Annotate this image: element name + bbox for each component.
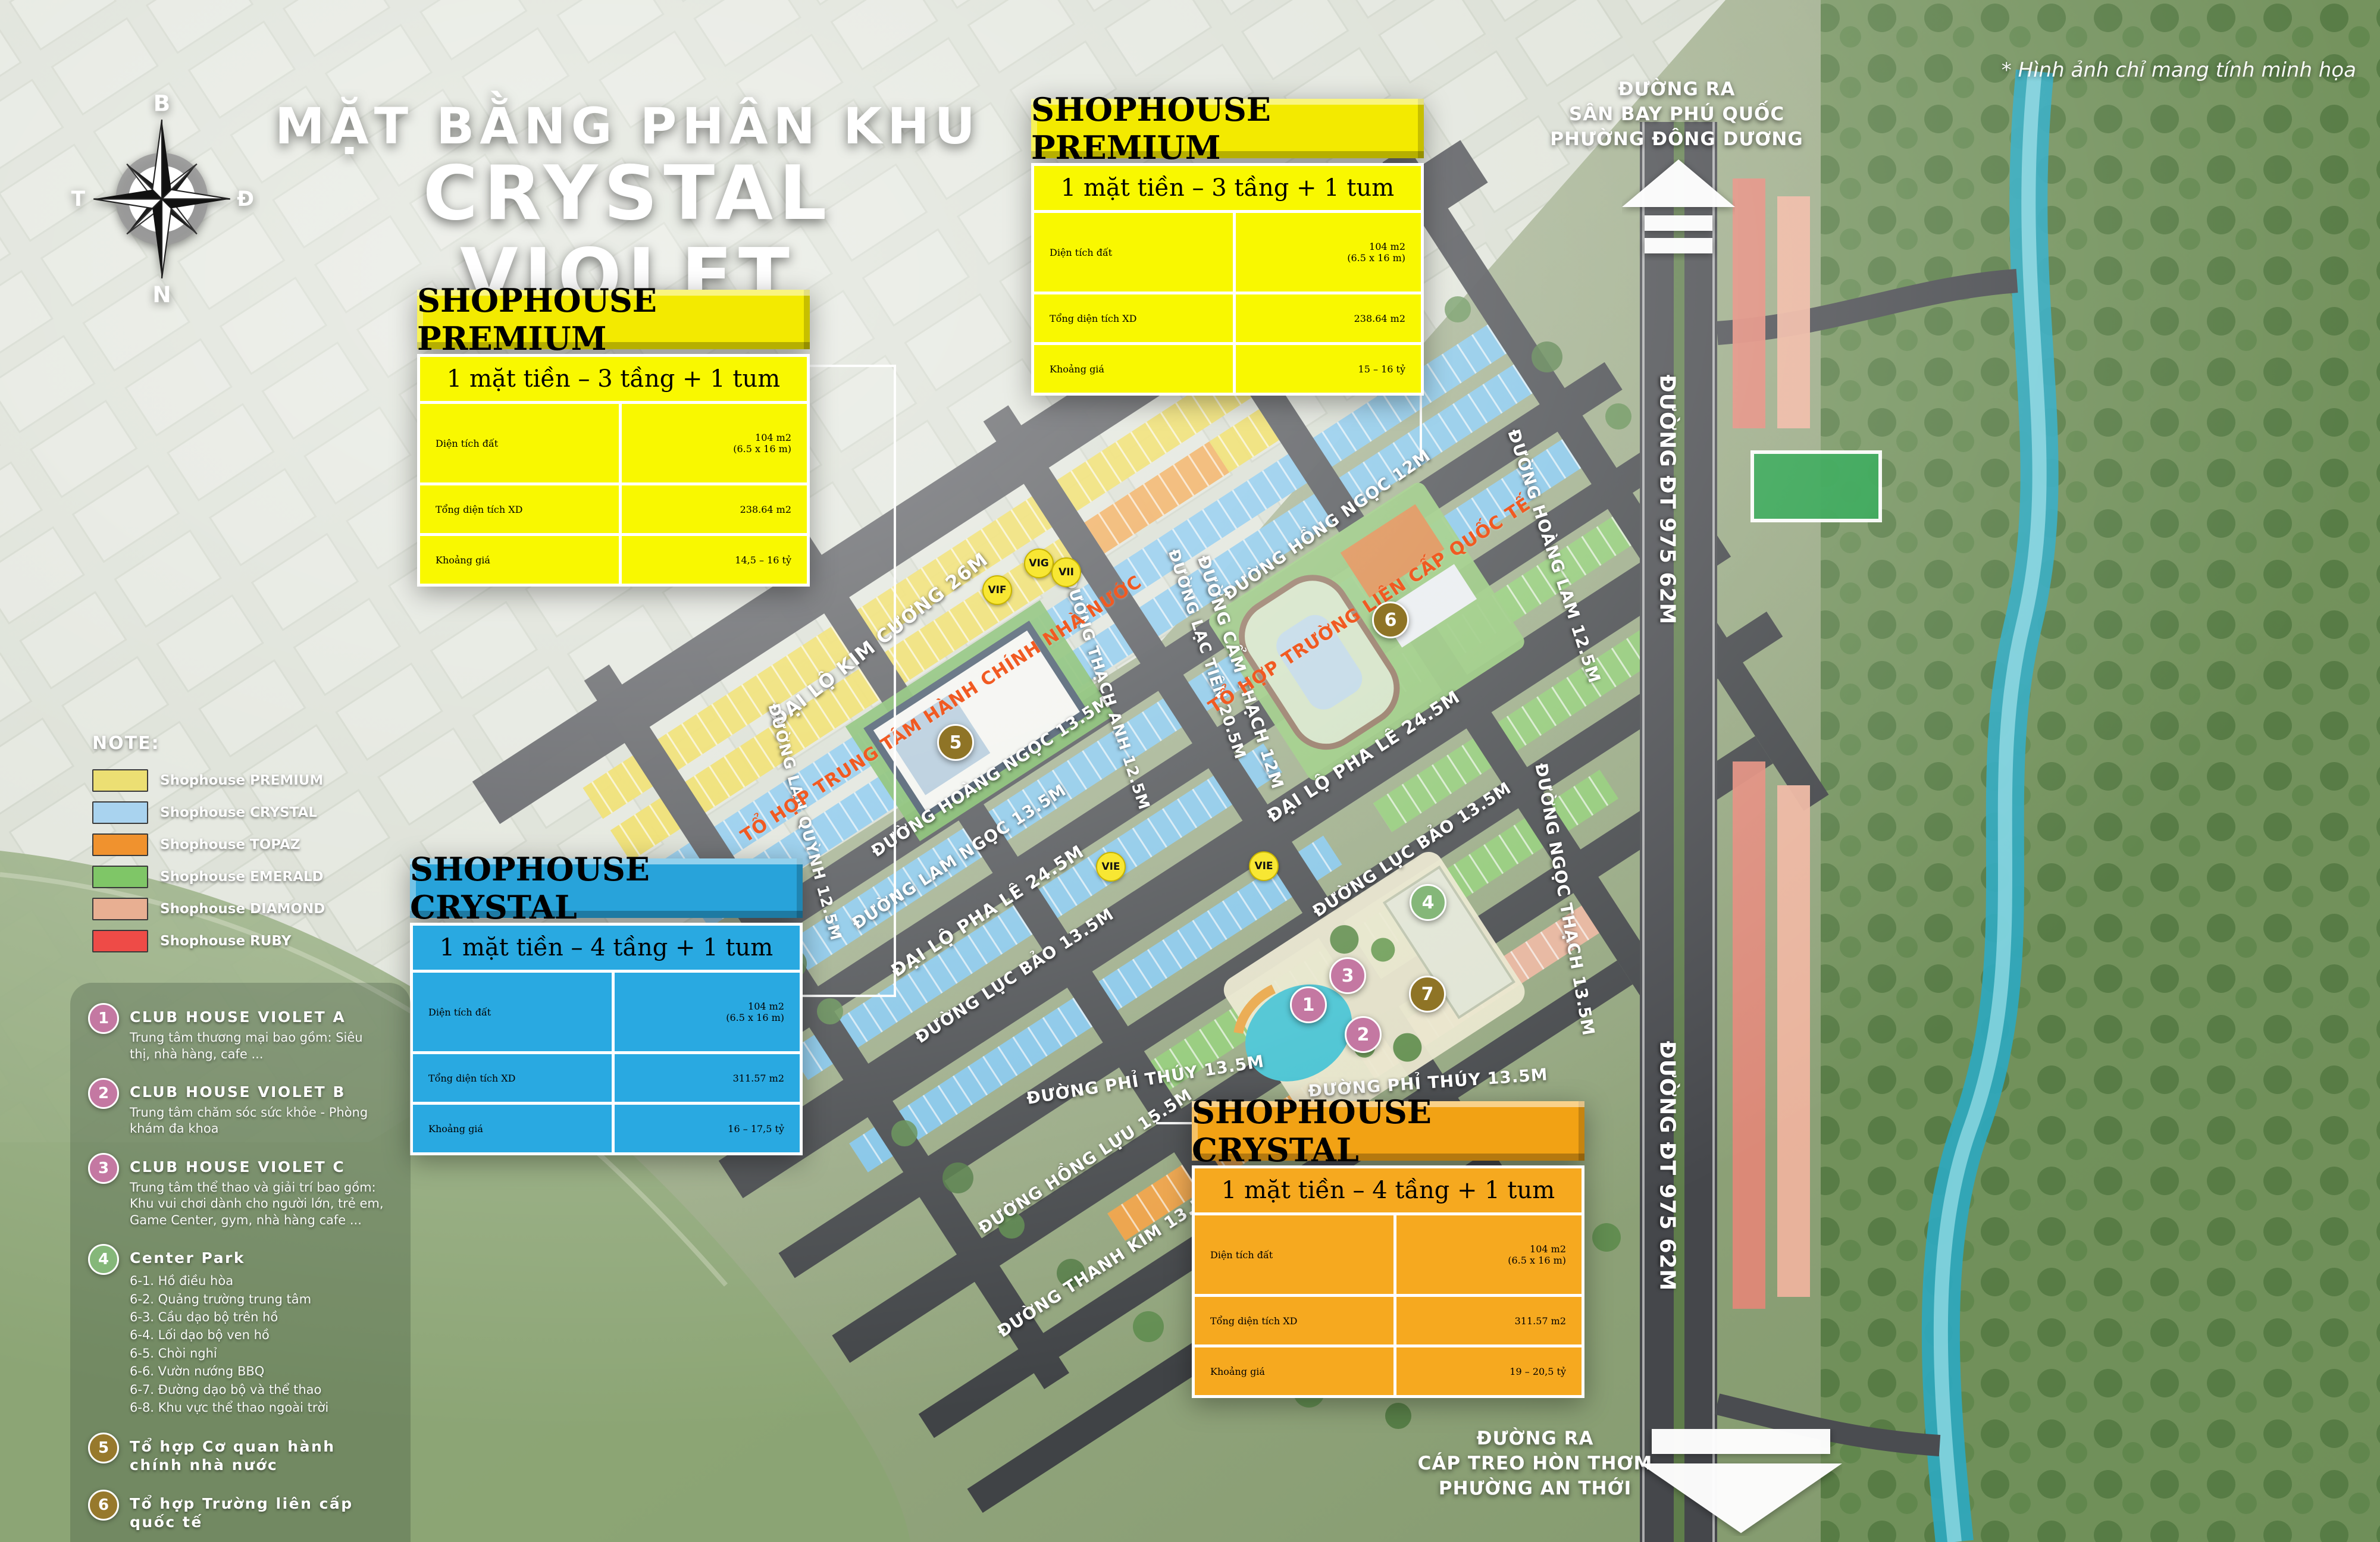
sign-line: SÂN BAY PHÚ QUỐC — [1528, 102, 1825, 127]
title-subdivision: MẶT BẰNG PHÂN KHU — [271, 100, 985, 152]
note-desc: Trung tâm thương mại bao gồm: Siêu thị, … — [130, 1030, 386, 1063]
infobox-shophouse-premium-left: SHOPHOUSE PREMIUM 1 mặt tiền – 3 tầng + … — [417, 290, 810, 587]
legend-swatch — [92, 801, 148, 824]
price-label: Khoảng giá — [1195, 1347, 1393, 1395]
price-value: 14,5 – 16 tỷ — [622, 536, 807, 584]
legend-label: Shophouse EMERALD — [160, 869, 324, 885]
legend-swatch — [92, 866, 148, 888]
sign-cable-car: ĐƯỜNG RA CÁP TREO HÒN THƠM PHƯỜNG AN THỚ… — [1386, 1427, 1684, 1502]
infobox-shophouse-premium-top: SHOPHOUSE PREMIUM 1 mặt tiền – 3 tầng + … — [1031, 99, 1424, 396]
gfa-value: 238.64 m2 — [1236, 294, 1421, 342]
infobox-title: SHOPHOUSE PREMIUM — [417, 290, 810, 349]
infobox-shophouse-crystal-blue: SHOPHOUSE CRYSTAL 1 mặt tiền – 4 tầng + … — [410, 858, 803, 1155]
arrow-up-icon — [1622, 159, 1735, 261]
price-label: Khoảng giá — [1034, 345, 1233, 393]
note-number-badge: 2 — [88, 1078, 119, 1109]
leader-line — [810, 365, 896, 367]
legend-label: Shophouse TOPAZ — [160, 837, 300, 853]
land-area-dims: (6.5 x 16 m) — [733, 443, 791, 455]
note-subitem: 6-1. Hồ điều hòa — [130, 1272, 328, 1290]
note-number-badge: 3 — [88, 1153, 119, 1184]
note-number-badge: 4 — [88, 1244, 119, 1275]
price-value: 15 – 16 tỷ — [1236, 345, 1421, 393]
legend-item: Shophouse TOPAZ — [92, 829, 390, 861]
legend-swatch — [92, 898, 148, 920]
note-item: 2CLUB HOUSE VIOLET BTrung tâm chăm sóc s… — [88, 1078, 395, 1137]
note-content: CLUB HOUSE VIOLET BTrung tâm chăm sóc sứ… — [130, 1078, 386, 1137]
leader-line — [803, 995, 896, 997]
land-area-value: 104 m2 — [1530, 1243, 1566, 1255]
note-desc: Trung tâm thể thao và giải trí bao gồm: … — [130, 1180, 386, 1228]
note-number-badge: 5 — [88, 1433, 119, 1463]
land-area-dims: (6.5 x 16 m) — [1347, 252, 1405, 264]
compass-south-label: N — [152, 281, 171, 308]
leader-line — [1420, 385, 1422, 458]
disclaimer-note: * Hình ảnh chỉ mang tính minh họa — [1999, 58, 2356, 82]
land-area-label: Diện tích đất — [420, 404, 619, 482]
note-title: Tổ hợp Trường liên cấp quốc tế — [130, 1494, 395, 1532]
compass-north-label: B — [154, 90, 170, 117]
note-title: Center Park — [130, 1249, 328, 1267]
note-content: Tổ hợp Trường liên cấp quốc tế — [130, 1490, 395, 1532]
note-number-badge: 6 — [88, 1490, 119, 1521]
gfa-value: 238.64 m2 — [622, 485, 807, 533]
note-subitem: 6-2. Quảng trường trung tâm — [130, 1290, 328, 1308]
legend: NOTE: Shophouse PREMIUMShophouse CRYSTAL… — [92, 733, 390, 957]
gfa-label: Tổng diện tích XD — [1195, 1297, 1393, 1344]
sign-airport: ĐƯỜNG RA SÂN BAY PHÚ QUỐC PHƯỜNG ĐÔNG DƯ… — [1528, 77, 1825, 152]
infobox-shophouse-crystal-orange: SHOPHOUSE CRYSTAL 1 mặt tiền – 4 tầng + … — [1192, 1101, 1584, 1398]
gfa-label: Tổng diện tích XD — [420, 485, 619, 533]
compass-rose: B Đ N T — [64, 82, 260, 316]
sign-line: ĐƯỜNG RA — [1386, 1427, 1684, 1452]
legend-item: Shophouse EMERALD — [92, 861, 390, 893]
note-subitems: 6-1. Hồ điều hòa6-2. Quảng trường trung … — [130, 1272, 328, 1417]
infobox-title: SHOPHOUSE PREMIUM — [1031, 99, 1424, 158]
legend-label: Shophouse DIAMOND — [160, 901, 325, 917]
compass-star — [93, 120, 230, 278]
sign-line: PHƯỜNG ĐÔNG DƯƠNG — [1528, 127, 1825, 152]
legend-items: Shophouse PREMIUMShophouse CRYSTALShopho… — [92, 764, 390, 957]
note-item: 1CLUB HOUSE VIOLET ATrung tâm thương mại… — [88, 1003, 395, 1063]
infobox-title: SHOPHOUSE CRYSTAL — [410, 858, 803, 918]
compass-west-label: T — [71, 187, 86, 211]
note-content: CLUB HOUSE VIOLET CTrung tâm thể thao và… — [130, 1153, 386, 1228]
note-subitem: 6-4. Lối dạo bộ ven hồ — [130, 1326, 328, 1344]
note-title: CLUB HOUSE VIOLET B — [130, 1083, 386, 1101]
note-item: 4Center Park6-1. Hồ điều hòa6-2. Quảng t… — [88, 1244, 395, 1417]
infobox-frontage: 1 mặt tiền – 3 tầng + 1 tum — [1034, 166, 1421, 210]
land-area-dims: (6.5 x 16 m) — [1508, 1255, 1566, 1266]
legend-label: Shophouse CRYSTAL — [160, 805, 317, 820]
leader-line — [1156, 1122, 1192, 1124]
infobox-frontage: 1 mặt tiền – 3 tầng + 1 tum — [420, 357, 807, 401]
land-area-value: 104 m2 — [748, 1001, 784, 1012]
legend-item: Shophouse RUBY — [92, 925, 390, 957]
note-subitem: 6-8. Khu vực thể thao ngoài trời — [130, 1399, 328, 1416]
note-title: CLUB HOUSE VIOLET C — [130, 1158, 386, 1176]
leader-line — [894, 365, 896, 996]
legend-item: Shophouse PREMIUM — [92, 764, 390, 797]
sign-line: ĐƯỜNG RA — [1528, 77, 1825, 102]
legend-swatch — [92, 769, 148, 792]
note-subitem: 6-6. Vườn nướng BBQ — [130, 1362, 328, 1380]
note-item: 5Tổ hợp Cơ quan hành chính nhà nước — [88, 1433, 395, 1475]
sign-line: CÁP TREO HÒN THƠM — [1386, 1452, 1684, 1477]
arrow-down-icon — [1640, 1429, 1842, 1536]
note-item: 3CLUB HOUSE VIOLET CTrung tâm thể thao v… — [88, 1153, 395, 1228]
sign-line: PHƯỜNG AN THỚI — [1386, 1477, 1684, 1502]
price-value: 16 – 17,5 tỷ — [615, 1105, 800, 1152]
legend-item: Shophouse CRYSTAL — [92, 797, 390, 829]
note-item: 6Tổ hợp Trường liên cấp quốc tế — [88, 1490, 395, 1532]
legend-title: NOTE: — [92, 733, 390, 754]
note-subitem: 6-3. Cầu dạo bộ trên hồ — [130, 1308, 328, 1326]
note-desc: Trung tâm chăm sóc sức khỏe - Phòng khám… — [130, 1105, 386, 1137]
notes-list: 1CLUB HOUSE VIOLET ATrung tâm thương mại… — [88, 1003, 395, 1542]
note-content: Center Park6-1. Hồ điều hòa6-2. Quảng tr… — [130, 1244, 328, 1417]
note-subitem: 6-5. Chòi nghỉ — [130, 1344, 328, 1362]
infobox-frontage: 1 mặt tiền – 4 tầng + 1 tum — [1195, 1168, 1582, 1212]
masterplan-poster: ĐẠI LỘ KIM CƯƠNG 26MĐƯỜNG HOÀNG NGỌC 13.… — [0, 0, 2380, 1542]
legend-swatch — [92, 833, 148, 856]
note-number-badge: 1 — [88, 1003, 119, 1034]
notes-panel: 1CLUB HOUSE VIOLET ATrung tâm thương mại… — [70, 983, 411, 1542]
note-content: Tổ hợp Cơ quan hành chính nhà nước — [130, 1433, 395, 1475]
land-area-label: Diện tích đất — [1195, 1215, 1393, 1294]
price-label: Khoảng giá — [420, 536, 619, 584]
compass-east-label: Đ — [237, 187, 254, 211]
price-value: 19 – 20,5 tỷ — [1396, 1347, 1582, 1395]
land-area-dims: (6.5 x 16 m) — [726, 1012, 784, 1023]
infobox-title: SHOPHOUSE CRYSTAL — [1192, 1101, 1584, 1161]
land-area-label: Diện tích đất — [413, 973, 612, 1051]
gfa-label: Tổng diện tích XD — [1034, 294, 1233, 342]
infobox-frontage: 1 mặt tiền – 4 tầng + 1 tum — [413, 926, 800, 970]
legend-label: Shophouse PREMIUM — [160, 773, 323, 788]
gfa-value: 311.57 m2 — [615, 1054, 800, 1102]
legend-label: Shophouse RUBY — [160, 933, 291, 949]
land-area-label: Diện tích đất — [1034, 213, 1233, 292]
note-title: CLUB HOUSE VIOLET A — [130, 1008, 386, 1026]
note-title: Tổ hợp Cơ quan hành chính nhà nước — [130, 1437, 395, 1475]
land-area-value: 104 m2 — [1369, 241, 1405, 252]
land-area-value: 104 m2 — [755, 432, 791, 443]
note-subitem: 6-7. Đường dạo bộ và thể thao — [130, 1381, 328, 1399]
gfa-label: Tổng diện tích XD — [413, 1054, 612, 1102]
legend-swatch — [92, 930, 148, 952]
price-label: Khoảng giá — [413, 1105, 612, 1152]
gfa-value: 311.57 m2 — [1396, 1297, 1582, 1344]
legend-item: Shophouse DIAMOND — [92, 893, 390, 925]
note-content: CLUB HOUSE VIOLET ATrung tâm thương mại … — [130, 1003, 386, 1063]
